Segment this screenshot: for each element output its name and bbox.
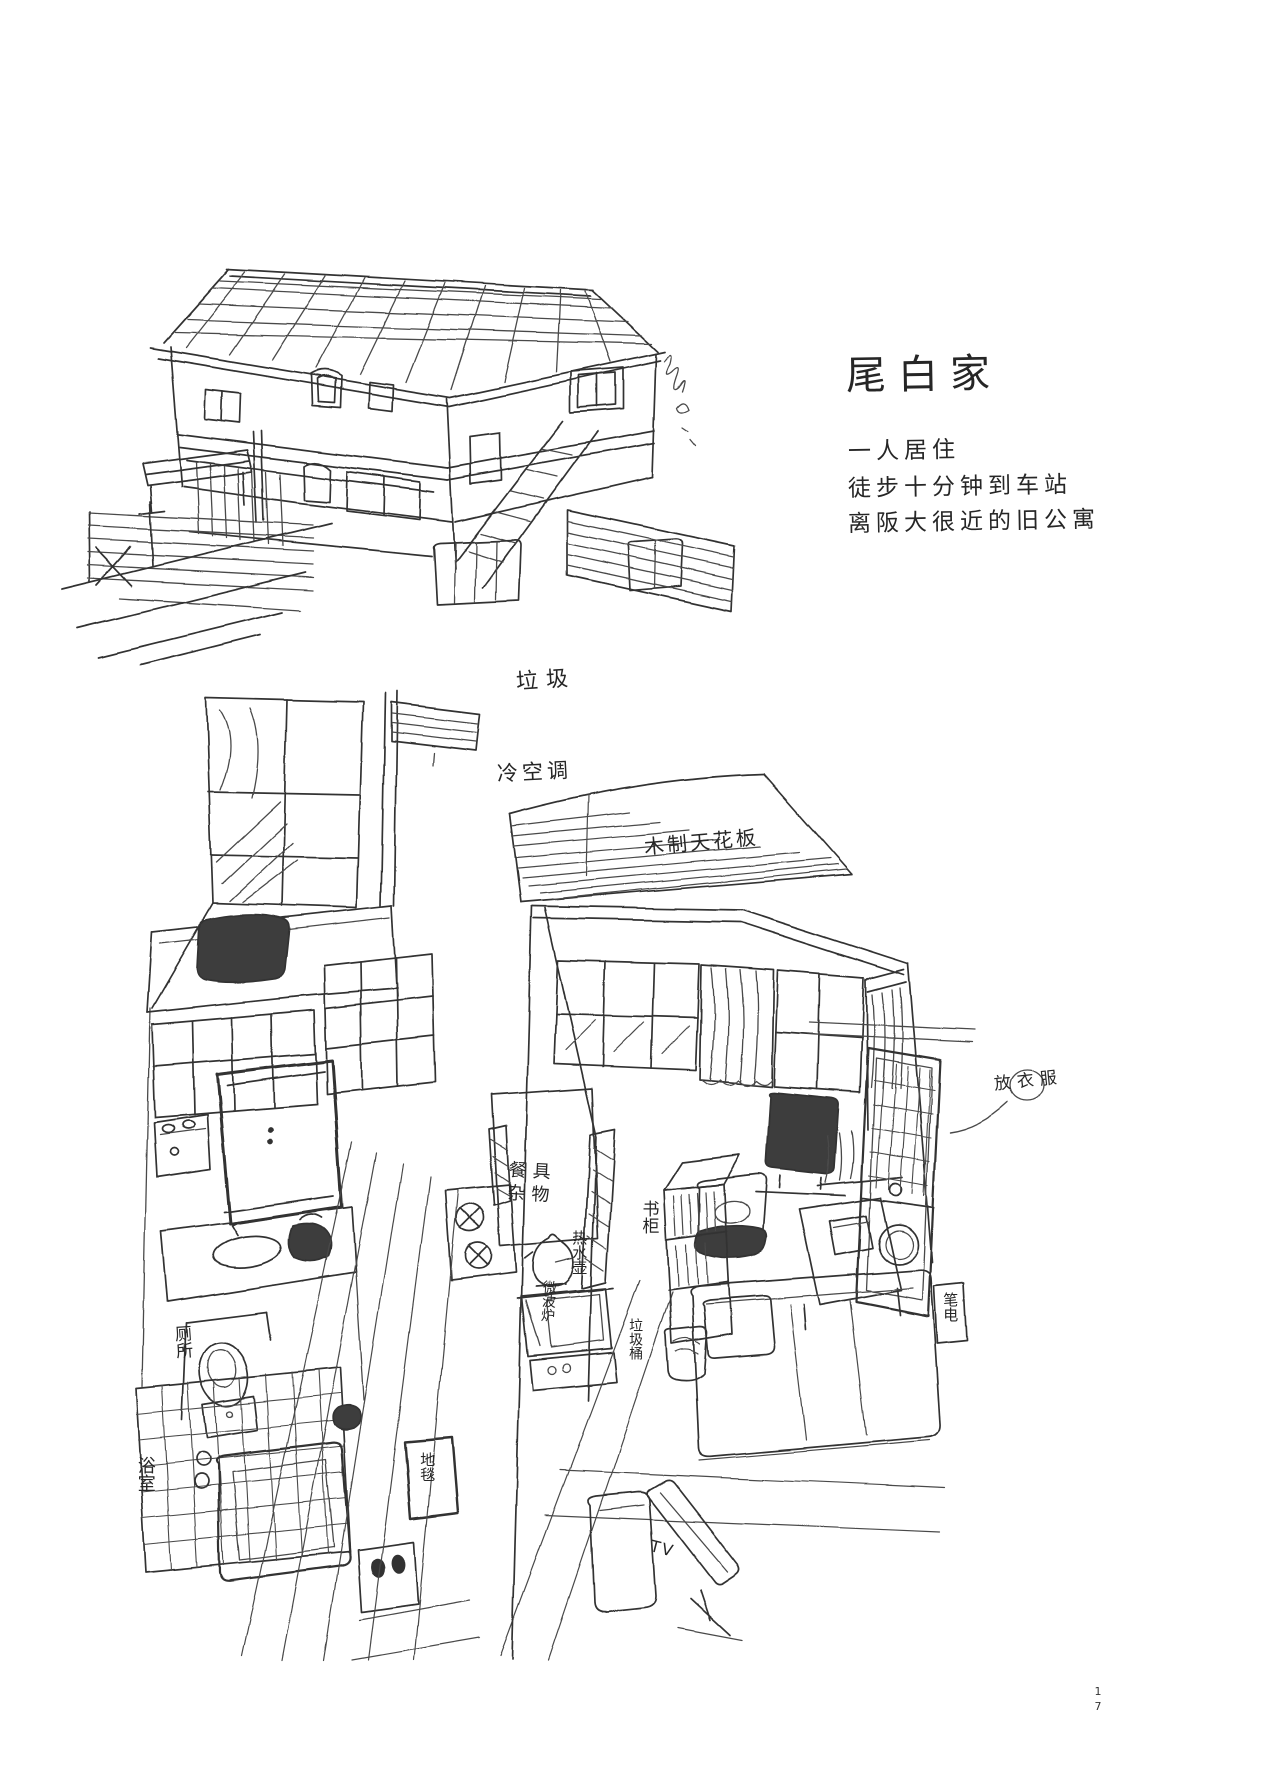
page-number-digit-1: 1	[1090, 1684, 1106, 1699]
label-dishes-line2: 杂物	[507, 1182, 556, 1207]
note-walk-to-station: 徒步十分钟到车站	[848, 472, 1072, 502]
fence-right	[567, 510, 735, 611]
bed-drawing	[690, 1270, 940, 1460]
label-laptop: 笔电	[941, 1292, 958, 1322]
living-windows	[554, 960, 864, 1092]
interior-sketch	[136, 692, 1045, 1660]
label-toilet: 厕所	[170, 1324, 192, 1359]
fence-left	[62, 502, 332, 665]
label-carpet: 地毯	[418, 1452, 435, 1482]
sketchbook-page: 尾白家 一人居住 徒步十分钟到车站 离阪大很近的旧公寓 垃圾 冷空调 木制天花板…	[0, 0, 1280, 1791]
label-trash-bin: 垃圾桶	[627, 1318, 643, 1360]
tv-drawing	[647, 1480, 742, 1640]
label-dishes-line1: 餐具	[508, 1159, 557, 1184]
note-living-alone: 一人居住	[848, 437, 960, 465]
tv-stand	[755, 1092, 845, 1196]
fridge-door-panel	[217, 1060, 342, 1224]
bush-scribbles	[664, 355, 695, 446]
kitchen-window	[324, 954, 435, 1094]
label-hot-water-kettle: 热水壶	[570, 1230, 587, 1275]
label-bookshelf: 书柜	[638, 1200, 658, 1234]
page-number: 1 7	[1090, 1684, 1106, 1714]
left-window	[142, 692, 397, 1386]
microwave-drawing	[518, 1288, 617, 1390]
label-garbage: 垃圾	[515, 666, 577, 695]
label-bathroom: 浴室	[134, 1456, 155, 1492]
page-number-digit-7: 7	[1090, 1699, 1106, 1714]
shelf-unit	[154, 1114, 210, 1178]
label-microwave: 微波炉	[539, 1279, 558, 1322]
stove-drawing	[445, 1184, 516, 1280]
curtain	[700, 965, 774, 1086]
toilet-drawing	[182, 1312, 270, 1438]
page-title: 尾白家	[846, 351, 1003, 400]
sketch-drawing	[0, 0, 1280, 1791]
kitchen-cabinets	[147, 906, 397, 1012]
partition-wall	[512, 906, 615, 1658]
label-air-conditioner: 冷空调	[496, 758, 572, 786]
ac-unit	[391, 703, 480, 766]
slipper-mat	[358, 1542, 418, 1612]
house-sketch	[62, 269, 735, 665]
label-dishes-sundries: 餐具 杂物	[507, 1159, 557, 1207]
house-roof	[150, 269, 665, 407]
note-old-apartment: 离阪大很近的旧公寓	[848, 507, 1100, 538]
counter-sink	[162, 1207, 364, 1400]
